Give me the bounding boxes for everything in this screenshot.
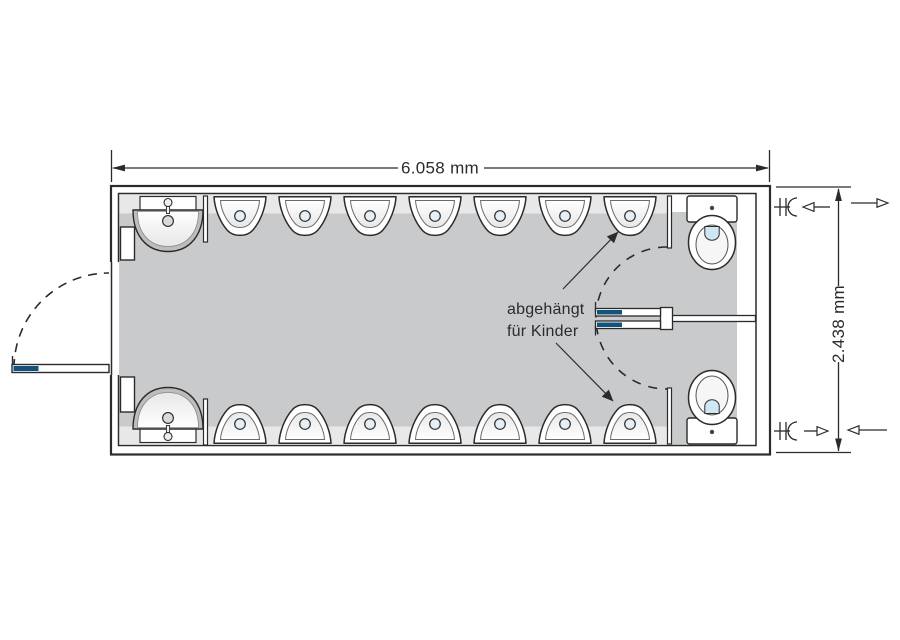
wc-cell-divider-wall [672, 316, 756, 322]
entrance-door-leaf-mark [14, 366, 39, 371]
connection-top [774, 198, 888, 216]
direction-arrow-left-icon [848, 426, 859, 434]
dimension-height-label: 2.438 mm [829, 285, 848, 363]
connection-bottom [774, 422, 887, 440]
wc-door-post [661, 308, 673, 330]
entrance-opening [110, 262, 120, 375]
floor-plan-canvas: abgehängt für Kinder 6.058 mm 2.438 mm [0, 0, 900, 640]
partition-top-right [668, 196, 672, 248]
pipe-connection-icon-top [774, 198, 797, 216]
partition-bottom-left [204, 399, 208, 445]
door-jamb-bottom [121, 377, 135, 412]
dimension-width: 6.058 mm [112, 150, 770, 182]
entrance-door-swing-arc [14, 273, 109, 368]
toilet-bottom [687, 371, 737, 445]
toilet-top [687, 196, 737, 270]
annotation-line1: abgehängt [507, 301, 585, 318]
wc-door-leaf-mark-1 [597, 310, 622, 315]
dimension-width-label: 6.058 mm [401, 159, 479, 178]
direction-arrow-right-icon [877, 199, 888, 207]
partition-bottom-right [668, 388, 672, 444]
door-jamb-top [121, 227, 135, 260]
floor-corridor [120, 214, 672, 427]
wc-door-leaf-mark-2 [597, 323, 622, 328]
partition-top-left [204, 196, 208, 242]
dimension-height: 2.438 mm [776, 187, 851, 453]
annotation-line2: für Kinder [507, 323, 579, 340]
entrance-door [12, 273, 109, 373]
flow-arrow-in-icon [803, 203, 814, 212]
pipe-connection-icon-bottom [774, 422, 797, 440]
flow-arrow-out-icon [817, 427, 828, 436]
